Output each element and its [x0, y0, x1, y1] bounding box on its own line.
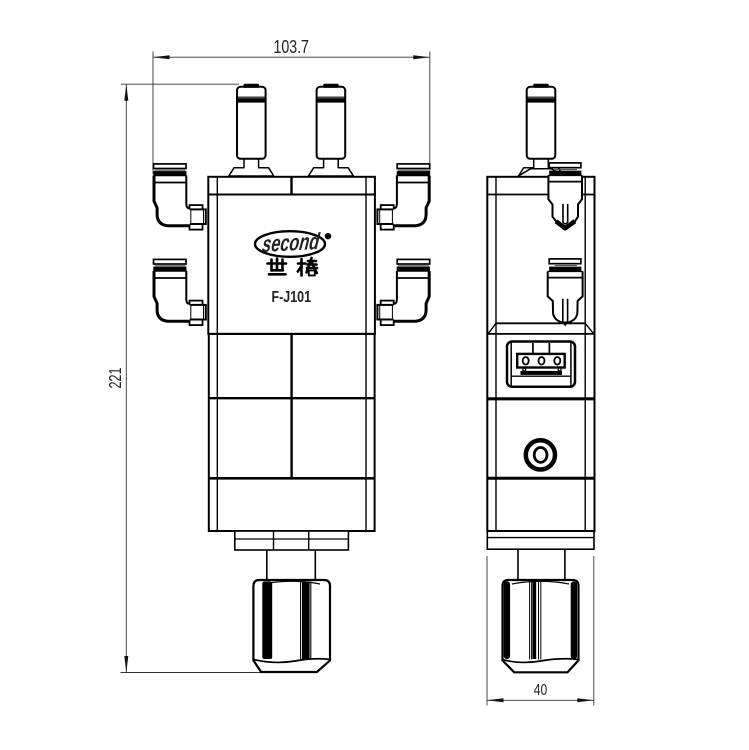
- svg-text:221: 221: [105, 368, 125, 389]
- svg-text:103.7: 103.7: [273, 36, 309, 57]
- svg-text:40: 40: [534, 682, 548, 699]
- svg-text:F-J101: F-J101: [272, 289, 312, 306]
- svg-text:second: second: [261, 228, 322, 257]
